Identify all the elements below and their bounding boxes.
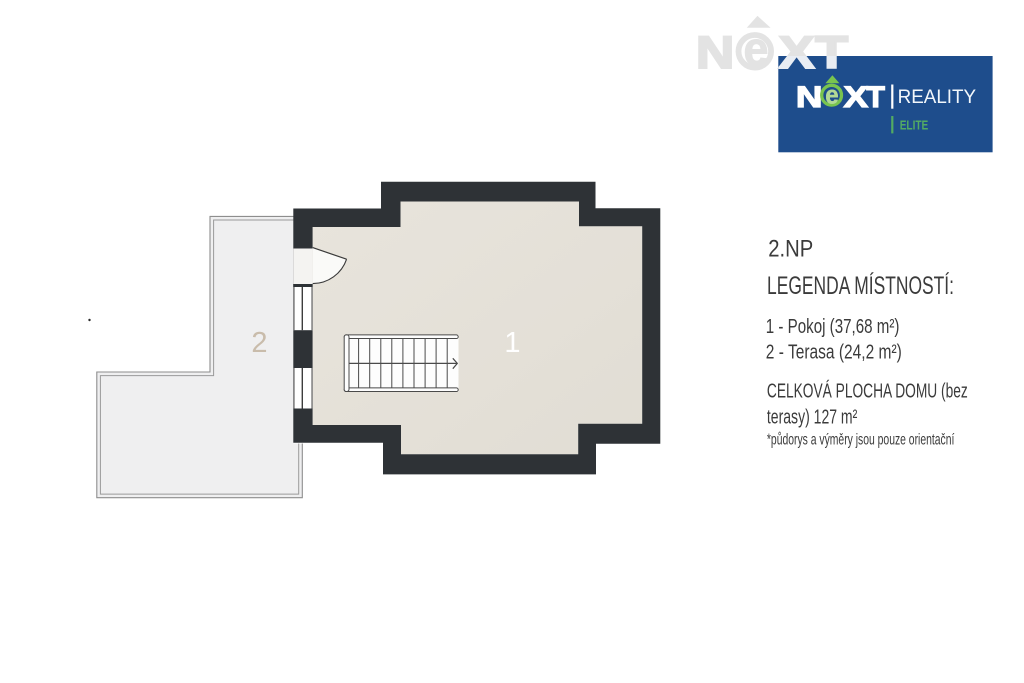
svg-text:*půdorys a výměry jsou pouze o: *půdorys a výměry jsou pouze orientační [767,431,955,449]
svg-text:1 - Pokoj (37,68 m²): 1 - Pokoj (37,68 m²) [766,316,900,338]
svg-text:terasy) 127 m²: terasy) 127 m² [767,406,858,428]
svg-text:ELITE: ELITE [900,117,929,132]
svg-text:2.NP: 2.NP [768,236,813,263]
svg-text:REALITY: REALITY [898,86,977,108]
svg-text:CELKOVÁ PLOCHA DOMU (bez: CELKOVÁ PLOCHA DOMU (bez [767,380,968,403]
svg-text:2: 2 [251,327,267,359]
svg-text:N: N [696,27,735,78]
svg-text:X: X [844,81,869,114]
svg-text:e: e [744,22,769,75]
svg-text:2 - Terasa (24,2 m²): 2 - Terasa (24,2 m²) [766,341,902,363]
svg-text:e: e [825,79,838,109]
svg-text:T: T [866,81,885,114]
svg-text:N: N [796,81,823,114]
svg-text:LEGENDA MÍSTNOSTÍ:: LEGENDA MÍSTNOSTÍ: [767,271,954,300]
svg-text:1: 1 [504,327,520,359]
